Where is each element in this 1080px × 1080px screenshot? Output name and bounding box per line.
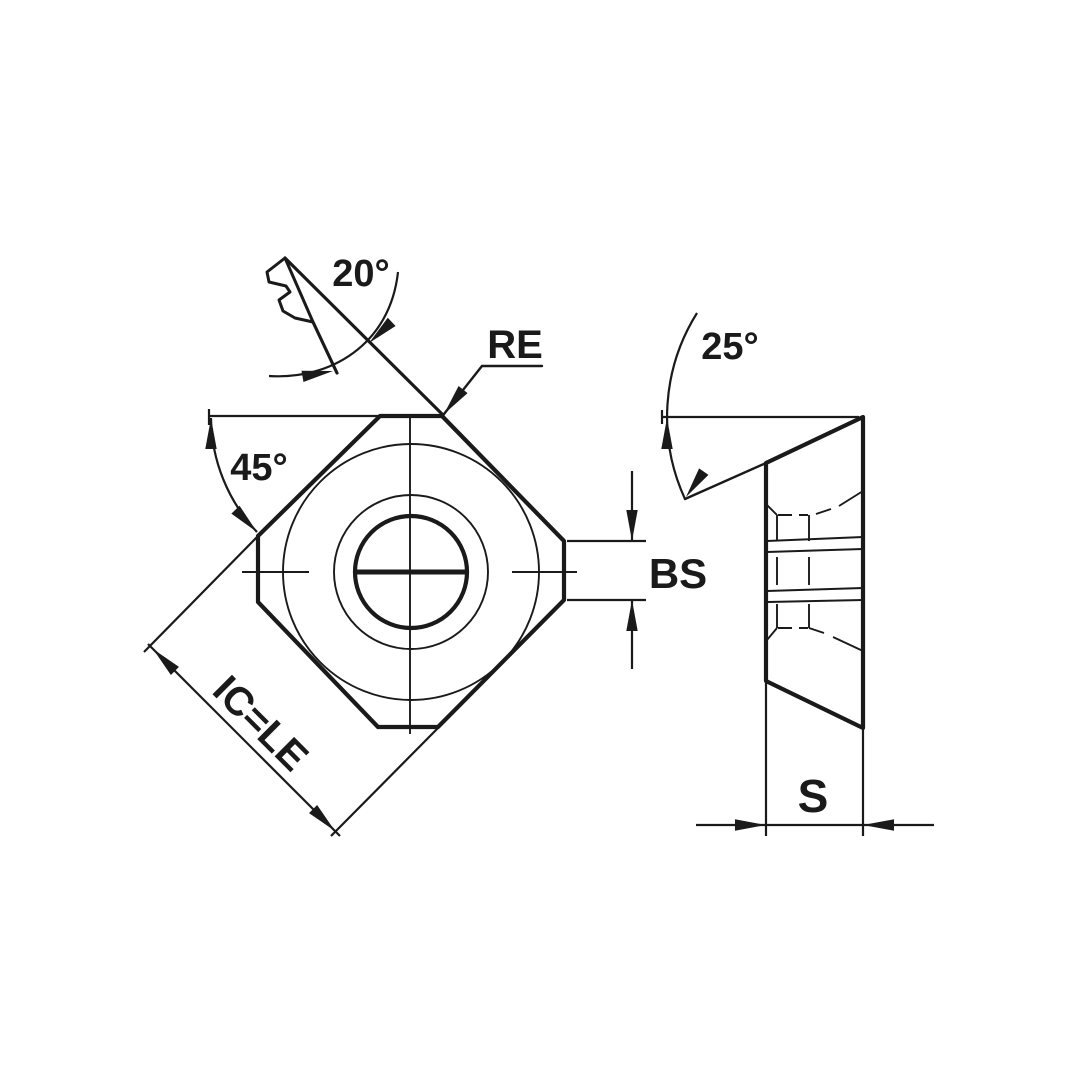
dimension-arrowhead — [626, 510, 637, 541]
insert-drawing: 45° 20° RE IC=LE BS — [0, 0, 1080, 1080]
extension-line — [331, 728, 438, 836]
thickness-label: S — [798, 770, 829, 822]
front-view — [242, 416, 577, 734]
extension-line — [144, 536, 258, 652]
drawing-canvas: 45° 20° RE IC=LE BS — [0, 0, 1080, 1080]
lead-angle-label: 20° — [332, 253, 389, 295]
facet-angle-label: 45° — [230, 447, 287, 489]
size-label: IC=LE — [204, 668, 316, 780]
angle-arc — [667, 313, 697, 499]
relief-angle-label: 25° — [701, 326, 758, 368]
dimension-arrowhead — [149, 645, 179, 675]
corner-radius-label: RE — [487, 323, 543, 367]
corner-radius-callout: RE — [440, 323, 543, 418]
dimension-line — [148, 644, 340, 836]
workpiece-break-symbol — [267, 258, 313, 322]
side-outline — [766, 417, 863, 728]
side-view — [766, 417, 863, 728]
arc-arrowhead — [205, 418, 216, 449]
dimension-arrowhead — [863, 819, 894, 830]
wiper-width-dimension: BS — [567, 471, 707, 669]
wiper-width-label: BS — [649, 550, 707, 597]
arc-arrowhead — [301, 365, 334, 382]
dimension-arrowhead — [735, 819, 766, 830]
dimension-arrowhead — [626, 600, 637, 631]
dimension-arrowhead — [309, 805, 339, 835]
lead-angle-dimension: 20° — [267, 253, 443, 415]
